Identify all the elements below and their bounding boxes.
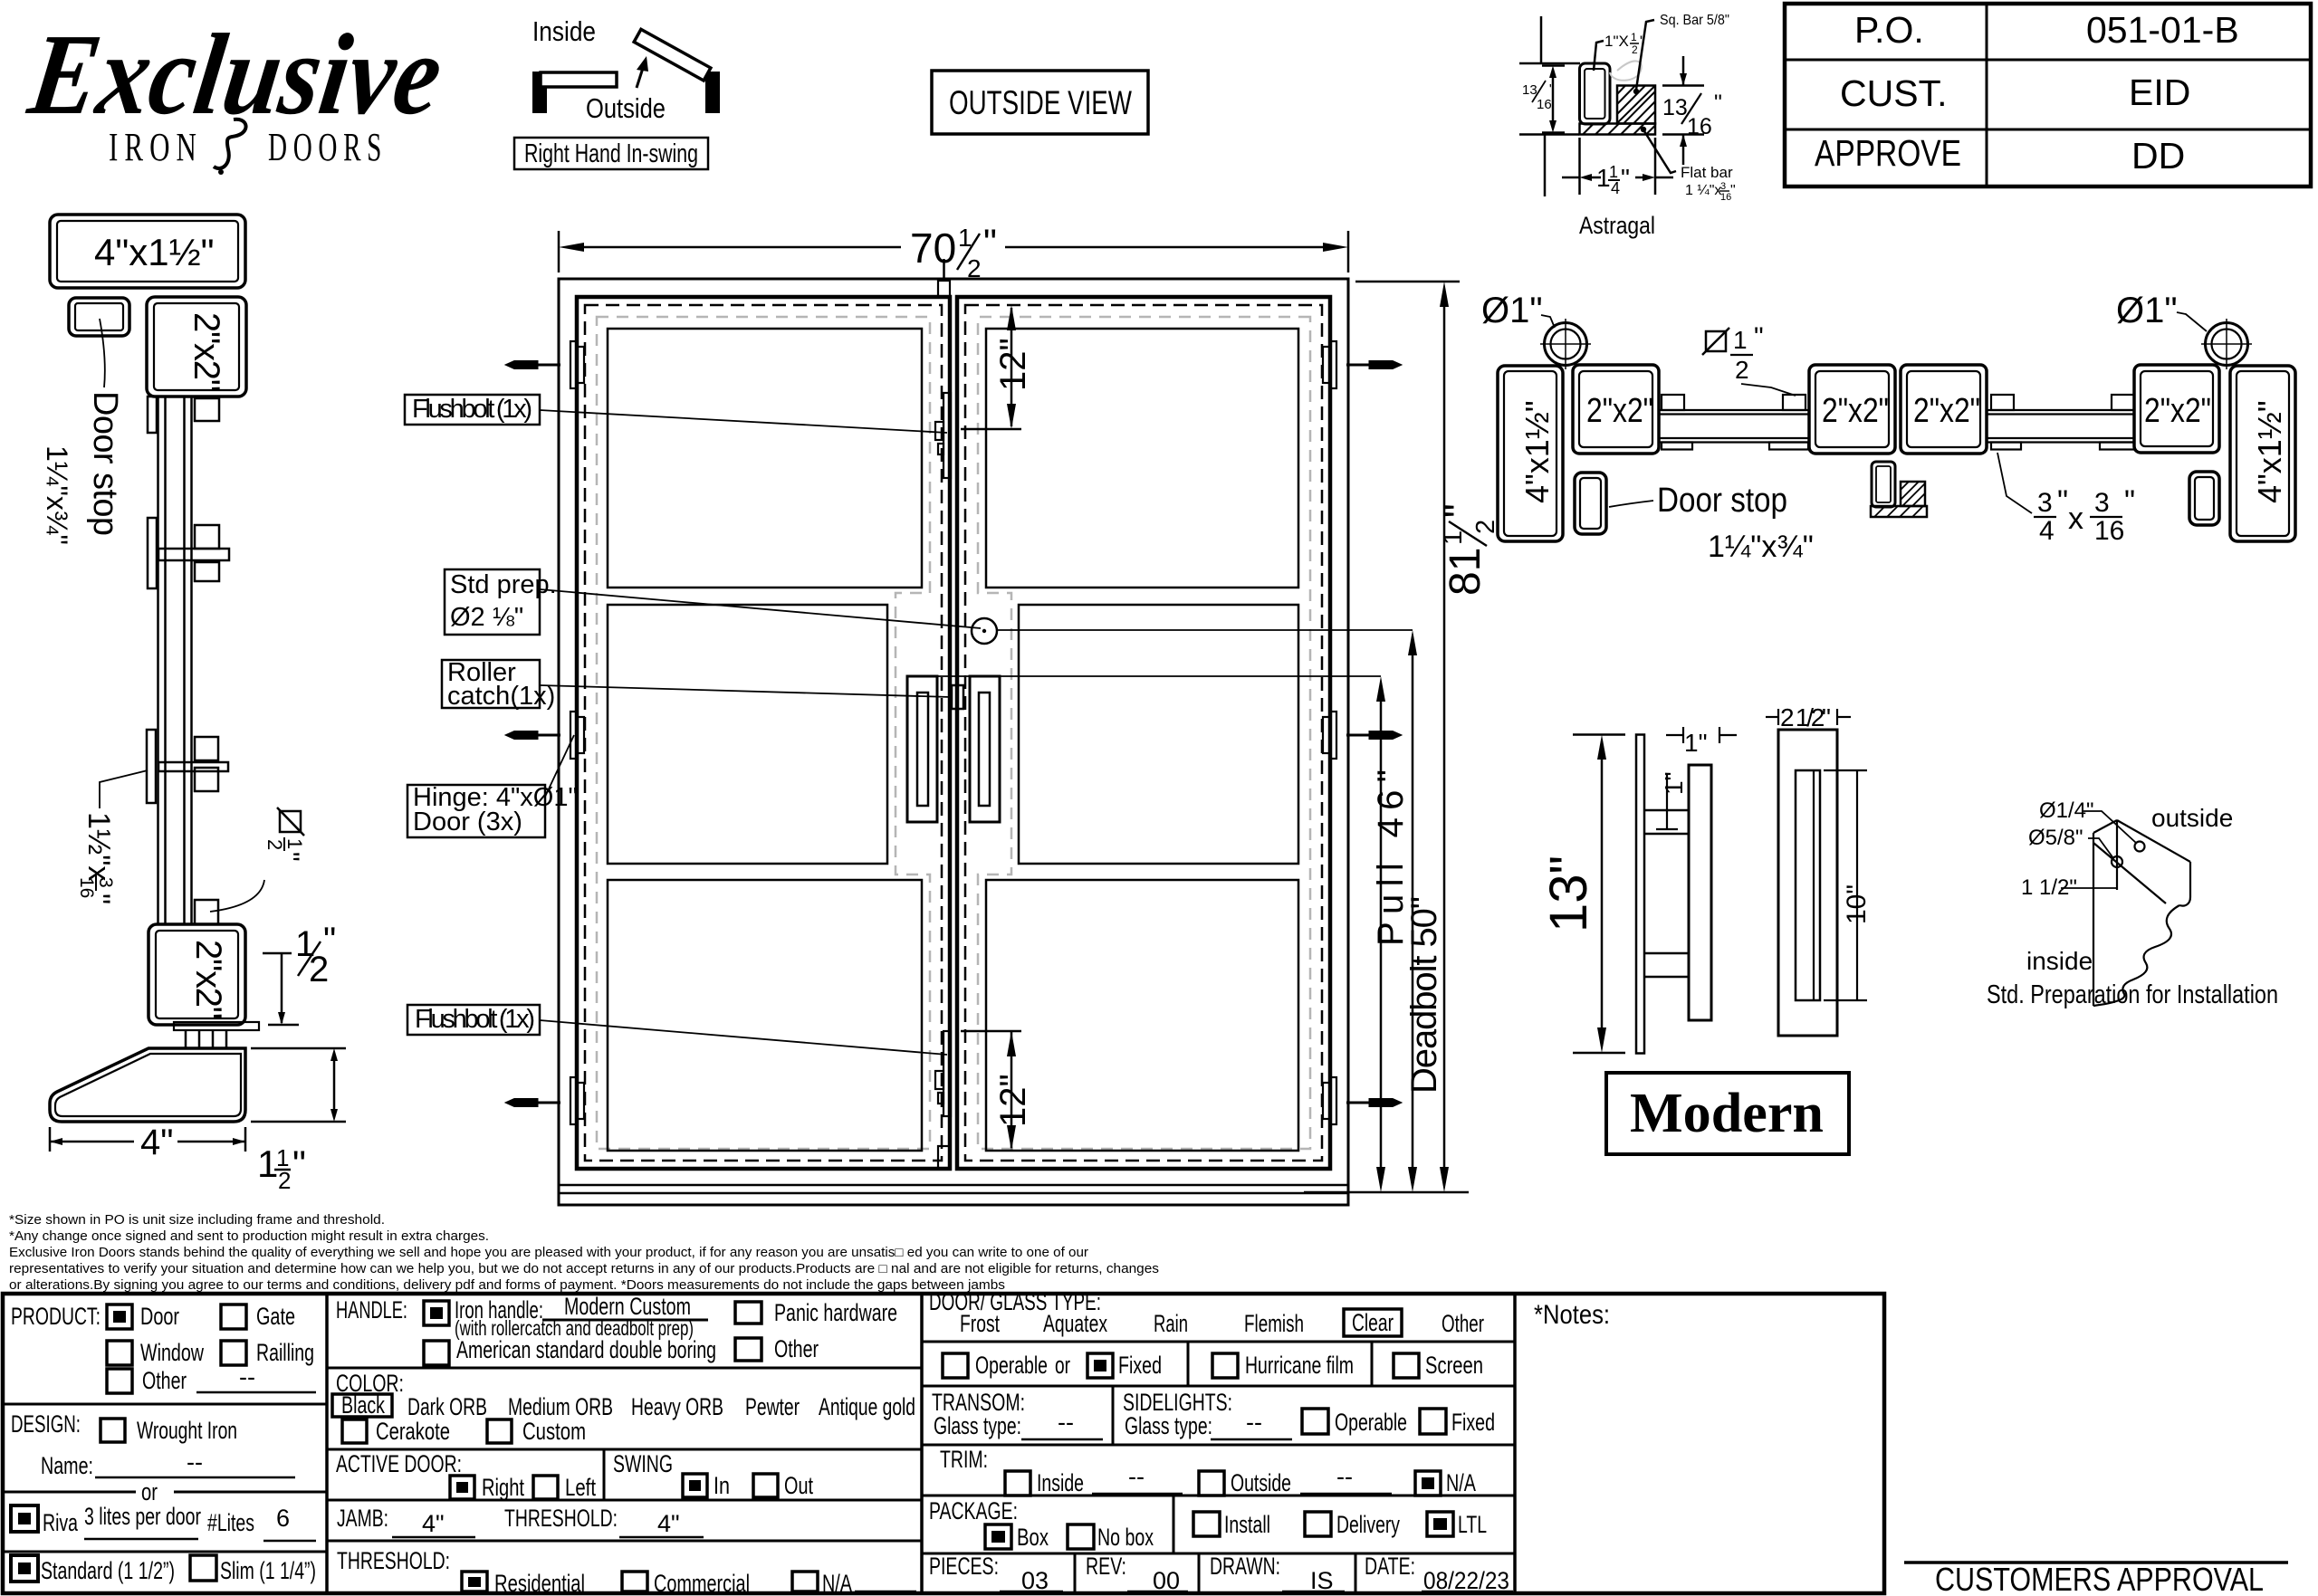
svg-text:PIECES:: PIECES:	[929, 1553, 999, 1580]
svg-text:x: x	[2068, 502, 2083, 536]
svg-text:Screen: Screen	[1425, 1352, 1483, 1379]
svg-text:N/A: N/A	[822, 1570, 852, 1596]
svg-text:3: 3	[1720, 181, 1726, 192]
svg-text:IRON: IRON	[109, 125, 203, 169]
svg-text:2: 2	[1632, 43, 1638, 56]
svg-text:outside: outside	[2151, 804, 2233, 832]
svg-text:4: 4	[2039, 516, 2055, 546]
svg-text:Window: Window	[140, 1339, 204, 1366]
svg-text:Fixed: Fixed	[1451, 1409, 1495, 1436]
svg-text:1 1/2": 1 1/2"	[2021, 875, 2077, 900]
svg-text:Left: Left	[565, 1474, 596, 1501]
svg-text:4": 4"	[657, 1510, 680, 1537]
svg-text:1: 1	[1609, 163, 1618, 181]
svg-text:HANDLE:: HANDLE:	[336, 1296, 407, 1324]
svg-text:4: 4	[1611, 179, 1620, 197]
svg-text:": "	[1437, 503, 1481, 518]
svg-text:TRIM:: TRIM:	[940, 1446, 988, 1473]
svg-text:or: or	[141, 1478, 158, 1505]
svg-text:Install: Install	[1224, 1511, 1270, 1538]
svg-text:Right Hand In-swing: Right Hand In-swing	[524, 139, 698, 168]
svg-text:Standard (1 1/2”): Standard (1 1/2”)	[41, 1557, 175, 1584]
svg-text:Door (3x): Door (3x)	[413, 808, 522, 836]
svg-text:*Size shown in PO is unit size: *Size shown in PO is unit size including…	[9, 1213, 385, 1228]
svg-text:DRAWN:: DRAWN:	[1210, 1553, 1280, 1580]
svg-text:4"x1½": 4"x1½"	[1518, 400, 1556, 503]
svg-text:*Notes:: *Notes:	[1534, 1300, 1610, 1330]
svg-text:EID: EID	[2129, 72, 2190, 113]
svg-text:Other: Other	[142, 1367, 187, 1394]
svg-text:Glass type:: Glass type:	[934, 1412, 1021, 1439]
svg-text:Sq. Bar 5/8": Sq. Bar 5/8"	[1660, 13, 1729, 28]
svg-text:REV:: REV:	[1086, 1553, 1126, 1580]
svg-text:2"x2": 2"x2"	[188, 940, 228, 1019]
svg-text:Railling: Railling	[256, 1339, 314, 1366]
svg-text:ACTIVE DOOR:: ACTIVE DOOR:	[336, 1450, 462, 1477]
svg-text:Hurricane film: Hurricane film	[1245, 1352, 1354, 1379]
svg-text:DESIGN:: DESIGN:	[11, 1410, 81, 1438]
svg-text:": "	[323, 921, 336, 960]
svg-text:2"x2": 2"x2"	[2144, 392, 2211, 430]
svg-text:Door stop: Door stop	[86, 391, 124, 536]
svg-text:OUTSIDE VIEW: OUTSIDE VIEW	[949, 84, 1132, 121]
svg-text:": "	[1640, 33, 1645, 50]
svg-text:16: 16	[2094, 516, 2124, 546]
svg-text:1¼"x¾": 1¼"x¾"	[41, 445, 73, 545]
svg-text:": "	[1754, 322, 1764, 352]
svg-text:": "	[1730, 183, 1736, 198]
svg-text:P.O.: P.O.	[1854, 9, 1924, 51]
svg-text:13: 13	[1522, 82, 1537, 98]
svg-text:1½"x: 1½"x	[81, 812, 116, 881]
svg-text:2: 2	[1735, 356, 1749, 384]
svg-text:81: 81	[1442, 548, 1489, 596]
svg-text:Exclusive Iron Doors stands be: Exclusive Iron Doors stands behind the q…	[9, 1246, 1088, 1260]
svg-text:catch(1x): catch(1x)	[447, 682, 555, 711]
svg-text:6: 6	[276, 1505, 290, 1532]
svg-text:3 lites per door: 3 lites per door	[84, 1503, 201, 1530]
svg-text:N/A: N/A	[1446, 1469, 1476, 1496]
svg-text:Ø5/8": Ø5/8"	[2028, 826, 2083, 850]
svg-text:12": 12"	[993, 1074, 1033, 1127]
svg-text:": "	[2124, 484, 2135, 519]
svg-text:representatives to verify your: representatives to verify your situation…	[9, 1262, 1159, 1276]
svg-text:2"x2": 2"x2"	[1913, 392, 1980, 430]
svg-text:2: 2	[263, 839, 286, 850]
svg-text:SWING: SWING	[613, 1450, 673, 1477]
svg-text:": "	[1714, 91, 1722, 116]
svg-text:Aquatex: Aquatex	[1043, 1310, 1107, 1337]
svg-text:Box: Box	[1017, 1524, 1049, 1551]
svg-text:Rain: Rain	[1154, 1310, 1188, 1337]
svg-text:1: 1	[1439, 530, 1468, 545]
svg-text:Slim (1 1/4”): Slim (1 1/4”)	[220, 1557, 316, 1584]
svg-text:--: --	[239, 1363, 255, 1391]
svg-text:Astragal: Astragal	[1579, 212, 1655, 239]
svg-text:3: 3	[2037, 488, 2053, 518]
svg-text:CUSTOMERS APPROVAL: CUSTOMERS APPROVAL	[1935, 1561, 2264, 1596]
svg-text:Flushbolt (1x): Flushbolt (1x)	[412, 395, 532, 424]
svg-text:IS: IS	[1310, 1567, 1334, 1594]
svg-text:1"X: 1"X	[1604, 33, 1629, 50]
svg-text:Gate: Gate	[256, 1303, 295, 1330]
svg-text:American standard double borin: American standard double boring	[456, 1336, 716, 1363]
svg-text:1: 1	[1631, 31, 1637, 43]
svg-text:Panic hardware: Panic hardware	[774, 1299, 897, 1326]
svg-text:70: 70	[910, 225, 956, 272]
svg-text:Flat bar: Flat bar	[1681, 164, 1733, 181]
svg-text:Ø1": Ø1"	[1481, 291, 1543, 330]
svg-text:2"x2": 2"x2"	[187, 312, 226, 392]
svg-text:2: 2	[967, 254, 982, 282]
svg-text:": "	[983, 221, 997, 263]
svg-text:Other: Other	[1442, 1310, 1484, 1337]
svg-text:00: 00	[1153, 1567, 1180, 1594]
svg-text:Black: Black	[341, 1391, 385, 1419]
svg-text:4"x1½": 4"x1½"	[2251, 400, 2288, 503]
svg-text:--: --	[187, 1448, 203, 1476]
svg-text:13: 13	[1662, 95, 1688, 120]
svg-text:2"x2": 2"x2"	[1822, 392, 1889, 430]
svg-text:PRODUCT:: PRODUCT:	[11, 1303, 101, 1330]
svg-text:or alterations.By signing you: or alterations.By signing you agree to o…	[9, 1278, 1005, 1293]
svg-text:Delivery: Delivery	[1336, 1511, 1400, 1538]
svg-text:Glass type:: Glass type:	[1125, 1412, 1212, 1439]
svg-text:APPROVE: APPROVE	[1815, 132, 1961, 174]
svg-text:*Any change once signed and se: *Any change once signed and sent to prod…	[9, 1229, 489, 1244]
svg-text:Flemish: Flemish	[1244, 1310, 1304, 1337]
svg-text:Inside: Inside	[532, 15, 596, 47]
svg-text:Custom: Custom	[522, 1418, 586, 1445]
svg-text:or: or	[1055, 1352, 1070, 1379]
svg-text:Wrought Iron: Wrought Iron	[137, 1417, 237, 1444]
svg-text:In: In	[714, 1472, 730, 1499]
svg-text:2: 2	[278, 1167, 291, 1194]
svg-text:Residential: Residential	[494, 1570, 585, 1596]
svg-text:": "	[292, 1142, 306, 1185]
svg-text:Operable: Operable	[975, 1352, 1048, 1379]
svg-text:16: 16	[1537, 97, 1552, 112]
svg-text:Flushbolt (1x): Flushbolt (1x)	[415, 1005, 535, 1034]
svg-text:1: 1	[1733, 326, 1748, 354]
svg-text:": "	[1621, 164, 1630, 192]
svg-text:CUST.: CUST.	[1840, 72, 1947, 114]
svg-text:Std prep.: Std prep.	[450, 570, 557, 599]
svg-text:JAMB:: JAMB:	[337, 1505, 388, 1532]
svg-text:Operable: Operable	[1335, 1409, 1407, 1436]
svg-text:1": 1"	[1660, 771, 1688, 795]
svg-text:Ø1": Ø1"	[2116, 291, 2178, 330]
svg-text:Out: Out	[784, 1472, 813, 1499]
svg-text:DOORS: DOORS	[268, 125, 388, 169]
svg-text:Commercial: Commercial	[654, 1570, 750, 1596]
svg-text:Std. Preparation for Installat: Std. Preparation for Installation	[1987, 980, 2278, 1009]
svg-text:12": 12"	[993, 338, 1033, 391]
svg-text:16: 16	[1687, 114, 1712, 139]
svg-text:Outside: Outside	[586, 92, 666, 124]
svg-text:1": 1"	[1684, 729, 1708, 757]
svg-text:2"x2": 2"x2"	[1586, 392, 1653, 430]
svg-text:10": 10"	[1842, 884, 1872, 924]
svg-text:--: --	[1058, 1409, 1074, 1436]
svg-text:4": 4"	[140, 1123, 173, 1162]
svg-text:THRESHOLD:: THRESHOLD:	[504, 1505, 618, 1532]
svg-text:Dark ORB: Dark ORB	[407, 1393, 487, 1420]
svg-text:Cerakote: Cerakote	[376, 1418, 450, 1445]
svg-text:Heavy ORB: Heavy ORB	[631, 1393, 723, 1420]
svg-text:--: --	[1128, 1463, 1145, 1490]
svg-text:13": 13"	[1539, 855, 1598, 932]
svg-text:inside: inside	[2026, 947, 2093, 975]
svg-text:": "	[81, 894, 116, 904]
svg-text:Door: Door	[140, 1303, 179, 1330]
svg-text:2: 2	[1471, 520, 1500, 534]
svg-text:1 ¼"x: 1 ¼"x	[1685, 183, 1721, 198]
svg-text:08/22/23: 08/22/23	[1423, 1567, 1509, 1594]
svg-text:Other: Other	[774, 1335, 819, 1362]
svg-text:Riva: Riva	[43, 1509, 79, 1536]
svg-text:2 1/2": 2 1/2"	[1780, 703, 1831, 731]
svg-text:Clear: Clear	[1352, 1309, 1394, 1336]
svg-text:Inside: Inside	[1037, 1469, 1084, 1496]
svg-text:1¼"x¾": 1¼"x¾"	[1708, 530, 1814, 564]
svg-text:No box: No box	[1097, 1524, 1154, 1551]
svg-text:Right: Right	[482, 1474, 524, 1501]
svg-text:Fixed: Fixed	[1118, 1352, 1162, 1379]
svg-text:3: 3	[95, 877, 116, 888]
svg-text:Outside: Outside	[1231, 1469, 1291, 1496]
svg-text:--: --	[1246, 1409, 1262, 1436]
svg-text:Pewter: Pewter	[745, 1393, 800, 1420]
svg-text:1: 1	[257, 1142, 278, 1185]
svg-text:Ø1/4": Ø1/4"	[2039, 798, 2094, 823]
svg-text:DATE:: DATE:	[1365, 1553, 1415, 1580]
svg-text:Antique gold: Antique gold	[819, 1393, 915, 1420]
svg-text:3: 3	[2094, 488, 2110, 518]
svg-text:Door stop: Door stop	[1657, 482, 1787, 520]
svg-text:": "	[2057, 484, 2068, 519]
svg-text:LTL: LTL	[1458, 1511, 1487, 1538]
svg-text:PACKAGE:: PACKAGE:	[929, 1497, 1018, 1524]
svg-text:THRESHOLD:: THRESHOLD:	[337, 1547, 450, 1574]
svg-text:Deadbolt 50": Deadbolt 50"	[1404, 896, 1444, 1094]
svg-text:": "	[274, 852, 304, 862]
svg-text:Name:: Name:	[41, 1452, 93, 1479]
svg-text:Ø2 ⅛": Ø2 ⅛"	[450, 603, 523, 632]
svg-text:Medium ORB: Medium ORB	[508, 1393, 613, 1420]
svg-text:4": 4"	[422, 1510, 445, 1537]
svg-text:03: 03	[1021, 1567, 1049, 1594]
svg-text:": "	[1549, 81, 1554, 97]
svg-text:4"x1½": 4"x1½"	[94, 231, 215, 273]
svg-text:--: --	[1336, 1463, 1353, 1490]
svg-text:#Lites: #Lites	[207, 1509, 254, 1536]
svg-text:Frost: Frost	[960, 1310, 1000, 1337]
svg-text:Modern: Modern	[1630, 1083, 1824, 1144]
svg-text:051-01-B: 051-01-B	[2086, 9, 2239, 51]
svg-text:DD: DD	[2131, 135, 2185, 177]
